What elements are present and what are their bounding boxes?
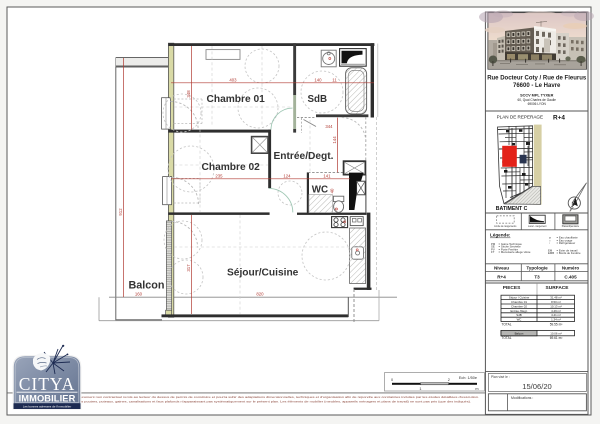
svg-text:SdB: SdB xyxy=(308,94,328,105)
svg-text:8.50 m²: 8.50 m² xyxy=(551,300,561,304)
svg-text:Les poutres, poteaux, gaines,: Les poutres, poteaux, gaines, canalisati… xyxy=(77,399,471,403)
svg-text:160: 160 xyxy=(135,292,143,297)
svg-text:124: 124 xyxy=(283,173,291,178)
svg-text:76600 - Le Havre: 76600 - Le Havre xyxy=(513,83,561,89)
svg-text:R+4: R+4 xyxy=(553,114,565,121)
svg-text:59.55 m²: 59.55 m² xyxy=(550,322,563,326)
svg-text:Rue Docteur Coty / Rue de Fleu: Rue Docteur Coty / Rue de Fleurus xyxy=(487,76,587,82)
svg-text:348: 348 xyxy=(186,90,191,98)
svg-text:235: 235 xyxy=(215,173,223,178)
svg-text:1: 1 xyxy=(419,387,421,391)
svg-text:31.48 m²: 31.48 m² xyxy=(550,296,561,300)
svg-text:Chambre 01: Chambre 01 xyxy=(511,300,527,304)
svg-text:TOTAL: TOTAL xyxy=(502,322,512,326)
svg-text:BATIMENT C: BATIMENT C xyxy=(496,206,528,212)
svg-text:403: 403 xyxy=(229,77,237,82)
svg-text:PLAN DE REPERAGE: PLAN DE REPERAGE xyxy=(497,115,543,120)
svg-text:Plan visé le :: Plan visé le : xyxy=(491,375,510,379)
svg-text:Chambre 02: Chambre 02 xyxy=(202,162,261,173)
svg-text:10.06 m²: 10.06 m² xyxy=(550,331,561,335)
svg-text:T3: T3 xyxy=(534,274,540,279)
svg-text:10.13 m²: 10.13 m² xyxy=(550,304,561,308)
svg-text:15/06/20: 15/06/20 xyxy=(522,382,552,391)
svg-text:Séjour / Cuisine: Séjour / Cuisine xyxy=(509,296,530,300)
svg-text:Local - rangement: Local - rangement xyxy=(528,225,547,228)
svg-text:Chambre 02: Chambre 02 xyxy=(511,304,527,308)
svg-text:FT: FT xyxy=(491,250,495,254)
svg-text:Chambre 01: Chambre 01 xyxy=(207,94,266,105)
svg-text:Entrée/Degt.: Entrée/Degt. xyxy=(274,151,334,162)
svg-text:= Menuiserie allege vitrée: = Menuiserie allege vitrée xyxy=(499,250,531,254)
svg-text:Typologie: Typologie xyxy=(526,266,548,271)
svg-text:344: 344 xyxy=(325,124,333,129)
svg-text:317: 317 xyxy=(186,264,191,272)
svg-text:C.405: C.405 xyxy=(564,274,577,279)
svg-text:SdB: SdB xyxy=(516,313,522,317)
svg-text:IMMOBILIER: IMMOBILIER xyxy=(19,394,76,404)
svg-text:Placard/penderie: Placard/penderie xyxy=(562,225,580,228)
svg-text:= Réfrigérateur: = Réfrigérateur xyxy=(557,241,576,245)
svg-text:Limite de rangements: Limite de rangements xyxy=(494,225,517,228)
svg-text:4.41 m²: 4.41 m² xyxy=(551,313,561,317)
svg-text:Balcon: Balcon xyxy=(129,280,165,292)
svg-text:▫: ▫ xyxy=(549,241,550,245)
svg-text:11: 11 xyxy=(332,77,337,82)
svg-text:WC: WC xyxy=(517,318,522,322)
svg-text:CITYA: CITYA xyxy=(19,374,76,394)
svg-text:40: 40 xyxy=(330,188,335,193)
svg-text:SCCV MPL TYXER: SCCV MPL TYXER xyxy=(520,94,554,98)
svg-text:912: 912 xyxy=(118,208,123,216)
svg-text:141: 141 xyxy=(323,173,331,178)
svg-text:140: 140 xyxy=(314,77,322,82)
svg-text:= Bords de Fenêtre: = Bords de Fenêtre xyxy=(557,251,581,255)
svg-text:69.61 m²: 69.61 m² xyxy=(550,336,563,340)
svg-text:R+4: R+4 xyxy=(497,274,506,279)
svg-text:1.34 m²: 1.34 m² xyxy=(551,318,561,322)
svg-text:4.49 m²: 4.49 m² xyxy=(551,309,561,313)
svg-text:820: 820 xyxy=(256,292,264,297)
svg-text:Numéro: Numéro xyxy=(562,266,580,271)
svg-text:PIECES: PIECES xyxy=(503,285,521,291)
svg-text:Séjour/Cuisine: Séjour/Cuisine xyxy=(227,268,299,279)
svg-text:Niveau: Niveau xyxy=(494,266,509,271)
svg-text:Légende:: Légende: xyxy=(490,233,511,238)
svg-text:m: m xyxy=(475,387,478,391)
svg-text:Ech: 1/50e: Ech: 1/50e xyxy=(459,376,477,380)
svg-text:N: N xyxy=(572,201,575,206)
svg-text:144: 144 xyxy=(332,136,337,144)
svg-text:Balcon: Balcon xyxy=(515,331,524,335)
svg-text:WC: WC xyxy=(312,185,328,196)
svg-text:TOTAL: TOTAL xyxy=(502,336,512,340)
svg-text:2: 2 xyxy=(448,378,450,382)
svg-text:EMB: EMB xyxy=(548,251,554,255)
svg-text:SURFACE: SURFACE xyxy=(546,285,570,291)
svg-text:0: 0 xyxy=(391,378,393,382)
svg-text:69006 LYON: 69006 LYON xyxy=(528,102,547,106)
svg-text:Modifications :: Modifications : xyxy=(511,396,533,400)
svg-text:Entrée /Degt.: Entrée /Degt. xyxy=(510,309,527,313)
svg-text:Les bonnes adresses de l'immob: Les bonnes adresses de l'immobilier xyxy=(23,405,71,409)
